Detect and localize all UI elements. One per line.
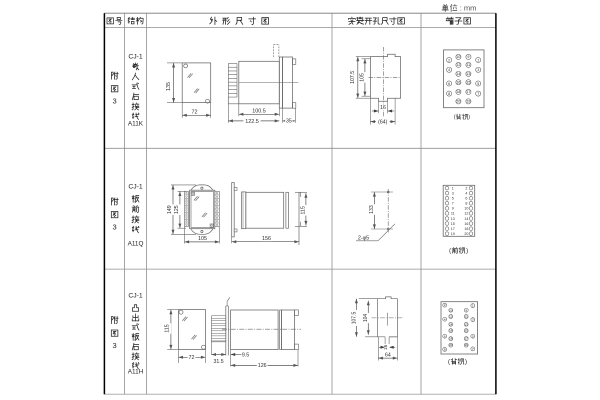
svg-text:11: 11 [451,212,455,216]
svg-text:7: 7 [452,202,454,206]
svg-text:11: 11 [467,63,471,67]
svg-text:149: 149 [167,205,173,214]
svg-text:12: 12 [456,63,460,67]
svg-text:15: 15 [465,329,469,333]
svg-text:3: 3 [113,97,117,106]
svg-text:17: 17 [466,90,470,94]
svg-text:105: 105 [198,236,207,242]
svg-text:107.5: 107.5 [351,312,357,325]
svg-text:125: 125 [174,205,180,214]
svg-text:20: 20 [464,232,468,236]
svg-text:11: 11 [465,315,468,319]
svg-text:CJ-1: CJ-1 [128,292,143,299]
svg-text:3: 3 [113,341,117,350]
svg-text:13: 13 [451,217,455,221]
svg-text:13: 13 [466,72,470,76]
svg-text:156: 156 [262,236,271,242]
svg-text:126: 126 [258,363,267,369]
svg-text:A11K: A11K [128,121,144,128]
svg-text:2: 2 [448,58,450,62]
svg-text:): ) [468,115,470,121]
svg-text:8: 8 [465,202,467,206]
svg-text:14: 14 [449,322,453,326]
svg-text:3: 3 [477,68,479,72]
svg-text:72: 72 [189,355,195,361]
svg-text:1: 1 [477,58,479,62]
svg-text:(64): (64) [378,119,387,125]
svg-text:19: 19 [465,343,469,347]
svg-text:15: 15 [451,222,455,226]
svg-text:10: 10 [456,55,460,59]
svg-text:18: 18 [456,90,460,94]
svg-text:9.5: 9.5 [242,352,249,358]
svg-text:2-φ5: 2-φ5 [358,235,369,241]
svg-text:7: 7 [477,92,479,96]
svg-text:115: 115 [300,206,306,214]
svg-text:14: 14 [456,72,460,76]
svg-text:mm: mm [464,3,477,12]
svg-text:3: 3 [452,191,454,195]
svg-text:12: 12 [449,315,453,319]
svg-text:A11Q: A11Q [128,240,144,247]
svg-text:4: 4 [448,68,450,72]
svg-text::: : [460,4,462,13]
svg-text:15: 15 [466,80,470,84]
svg-text:4: 4 [465,191,467,195]
svg-text:35: 35 [286,119,292,125]
svg-text:5: 5 [452,197,454,201]
svg-text:(: ( [449,248,451,254]
svg-text:12: 12 [464,212,468,216]
svg-text:(: ( [454,115,456,121]
svg-text:16: 16 [456,80,460,84]
svg-text:135: 135 [166,82,172,91]
svg-text:105: 105 [360,73,366,82]
svg-text:10: 10 [464,207,468,211]
svg-text:100.5: 100.5 [252,108,266,114]
svg-text:): ) [466,248,468,254]
svg-text:13: 13 [465,322,469,326]
svg-text:(: ( [448,359,450,365]
svg-text:107.5: 107.5 [350,71,356,84]
svg-text:31.5: 31.5 [214,359,224,365]
svg-text:6: 6 [465,197,467,201]
svg-text:16: 16 [449,329,453,333]
svg-text:133: 133 [369,205,375,214]
svg-text:5: 5 [477,82,479,86]
svg-text:CJ-1: CJ-1 [128,184,143,191]
svg-text:A11H: A11H [128,369,144,376]
svg-text:CJ-1: CJ-1 [128,54,143,61]
svg-text:17: 17 [451,227,455,231]
svg-text:9: 9 [467,55,469,59]
svg-text:20: 20 [456,100,460,104]
svg-text:18: 18 [464,227,468,231]
svg-text:14: 14 [464,217,468,221]
svg-text:16: 16 [464,222,468,226]
svg-text:19: 19 [466,100,470,104]
svg-text:72: 72 [192,110,198,116]
svg-text:122.5: 122.5 [245,119,259,125]
svg-text:16: 16 [380,105,386,111]
svg-text:1: 1 [452,186,454,190]
svg-text:104: 104 [363,314,369,323]
svg-text:16: 16 [383,344,388,350]
svg-text:10: 10 [449,308,453,312]
svg-text:18: 18 [449,337,453,341]
svg-text:8: 8 [448,92,450,96]
svg-text:115: 115 [165,324,171,332]
svg-text:): ) [465,359,467,365]
svg-text:6: 6 [448,82,450,86]
svg-text:3: 3 [113,222,117,231]
svg-text:2: 2 [465,186,467,190]
svg-text:20: 20 [449,343,453,347]
svg-text:64: 64 [385,353,391,359]
svg-text:17: 17 [465,337,469,341]
svg-text:9: 9 [452,207,454,211]
svg-text:19: 19 [451,232,455,236]
